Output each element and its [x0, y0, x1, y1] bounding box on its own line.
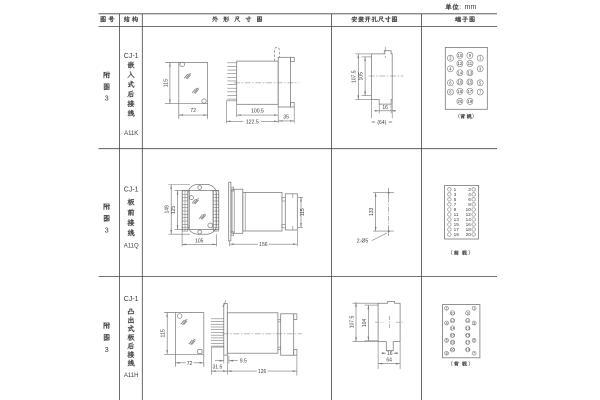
svg-text:CJ-1: CJ-1: [124, 296, 139, 303]
svg-text:20: 20: [451, 348, 455, 352]
svg-text:115: 115: [161, 329, 167, 337]
svg-text:16: 16: [458, 79, 463, 84]
svg-text:(: (: [451, 361, 453, 367]
svg-text:126: 126: [258, 369, 267, 375]
svg-text:15: 15: [468, 79, 473, 84]
svg-text:20: 20: [458, 99, 463, 104]
svg-text:16: 16: [387, 351, 393, 357]
svg-text:): ): [468, 250, 470, 256]
svg-text:A11H: A11H: [124, 373, 139, 379]
svg-text:): ): [472, 114, 474, 120]
svg-text:8: 8: [446, 351, 448, 355]
svg-text:64: 64: [386, 358, 392, 364]
svg-text:19: 19: [468, 99, 473, 104]
svg-text:(: (: [458, 114, 460, 120]
svg-text:CJ-1: CJ-1: [124, 53, 139, 60]
svg-text:105: 105: [195, 238, 204, 244]
svg-text:19: 19: [454, 232, 460, 237]
svg-text:mm: mm: [465, 4, 477, 11]
svg-text:3: 3: [105, 226, 109, 235]
svg-text:122.5: 122.5: [246, 119, 259, 125]
svg-text:17: 17: [466, 341, 470, 345]
svg-text::: :: [459, 4, 461, 11]
svg-text:3: 3: [105, 345, 109, 354]
svg-text:5: 5: [473, 339, 475, 343]
svg-text:13: 13: [466, 326, 470, 330]
svg-text:14: 14: [451, 326, 455, 330]
svg-text:104: 104: [362, 319, 368, 328]
svg-text:4: 4: [446, 321, 448, 325]
svg-text:11: 11: [468, 61, 473, 66]
svg-text:105: 105: [359, 72, 365, 81]
svg-text:A11K: A11K: [124, 131, 138, 137]
svg-text:16: 16: [451, 334, 455, 338]
svg-text:11: 11: [466, 319, 470, 323]
svg-text:16: 16: [382, 105, 388, 111]
svg-text:CJ-1: CJ-1: [124, 187, 139, 194]
svg-text:10: 10: [451, 311, 455, 315]
svg-text:72: 72: [187, 361, 193, 367]
svg-text:9.5: 9.5: [240, 359, 247, 365]
svg-text:A11Q: A11Q: [124, 244, 139, 250]
svg-text:13: 13: [468, 70, 473, 75]
svg-text:20: 20: [466, 232, 472, 237]
svg-text:35: 35: [283, 114, 289, 120]
svg-text:31.5: 31.5: [213, 365, 223, 371]
svg-text:2: 2: [446, 306, 448, 310]
svg-text:100.5: 100.5: [251, 109, 264, 115]
svg-text:12: 12: [451, 319, 455, 323]
svg-text:17: 17: [468, 89, 473, 94]
svg-text:107.5: 107.5: [349, 316, 355, 329]
svg-text:7: 7: [473, 351, 475, 355]
svg-text:12: 12: [458, 61, 463, 66]
svg-text:107.5: 107.5: [352, 70, 358, 83]
svg-text:149: 149: [165, 205, 171, 214]
svg-text:1: 1: [473, 306, 475, 310]
svg-text:): ): [468, 361, 470, 367]
svg-text:3: 3: [105, 94, 109, 103]
svg-text:19: 19: [466, 348, 470, 352]
svg-text:10: 10: [458, 53, 463, 58]
svg-text:156: 156: [259, 242, 268, 248]
svg-text:15: 15: [466, 334, 470, 338]
svg-text:14: 14: [458, 70, 463, 75]
svg-text:125: 125: [171, 206, 177, 215]
svg-text:133: 133: [369, 208, 375, 217]
svg-text:72: 72: [190, 108, 196, 114]
svg-text:115: 115: [163, 79, 169, 87]
svg-text:18: 18: [458, 89, 463, 94]
svg-text:6: 6: [446, 339, 448, 343]
svg-text:2-Ø5: 2-Ø5: [357, 238, 369, 244]
svg-text:115: 115: [300, 208, 306, 216]
svg-text:9: 9: [467, 311, 469, 315]
svg-text:18: 18: [451, 341, 455, 345]
svg-text:3: 3: [473, 321, 475, 325]
svg-text:(64): (64): [377, 120, 386, 126]
svg-text:(: (: [451, 250, 453, 256]
